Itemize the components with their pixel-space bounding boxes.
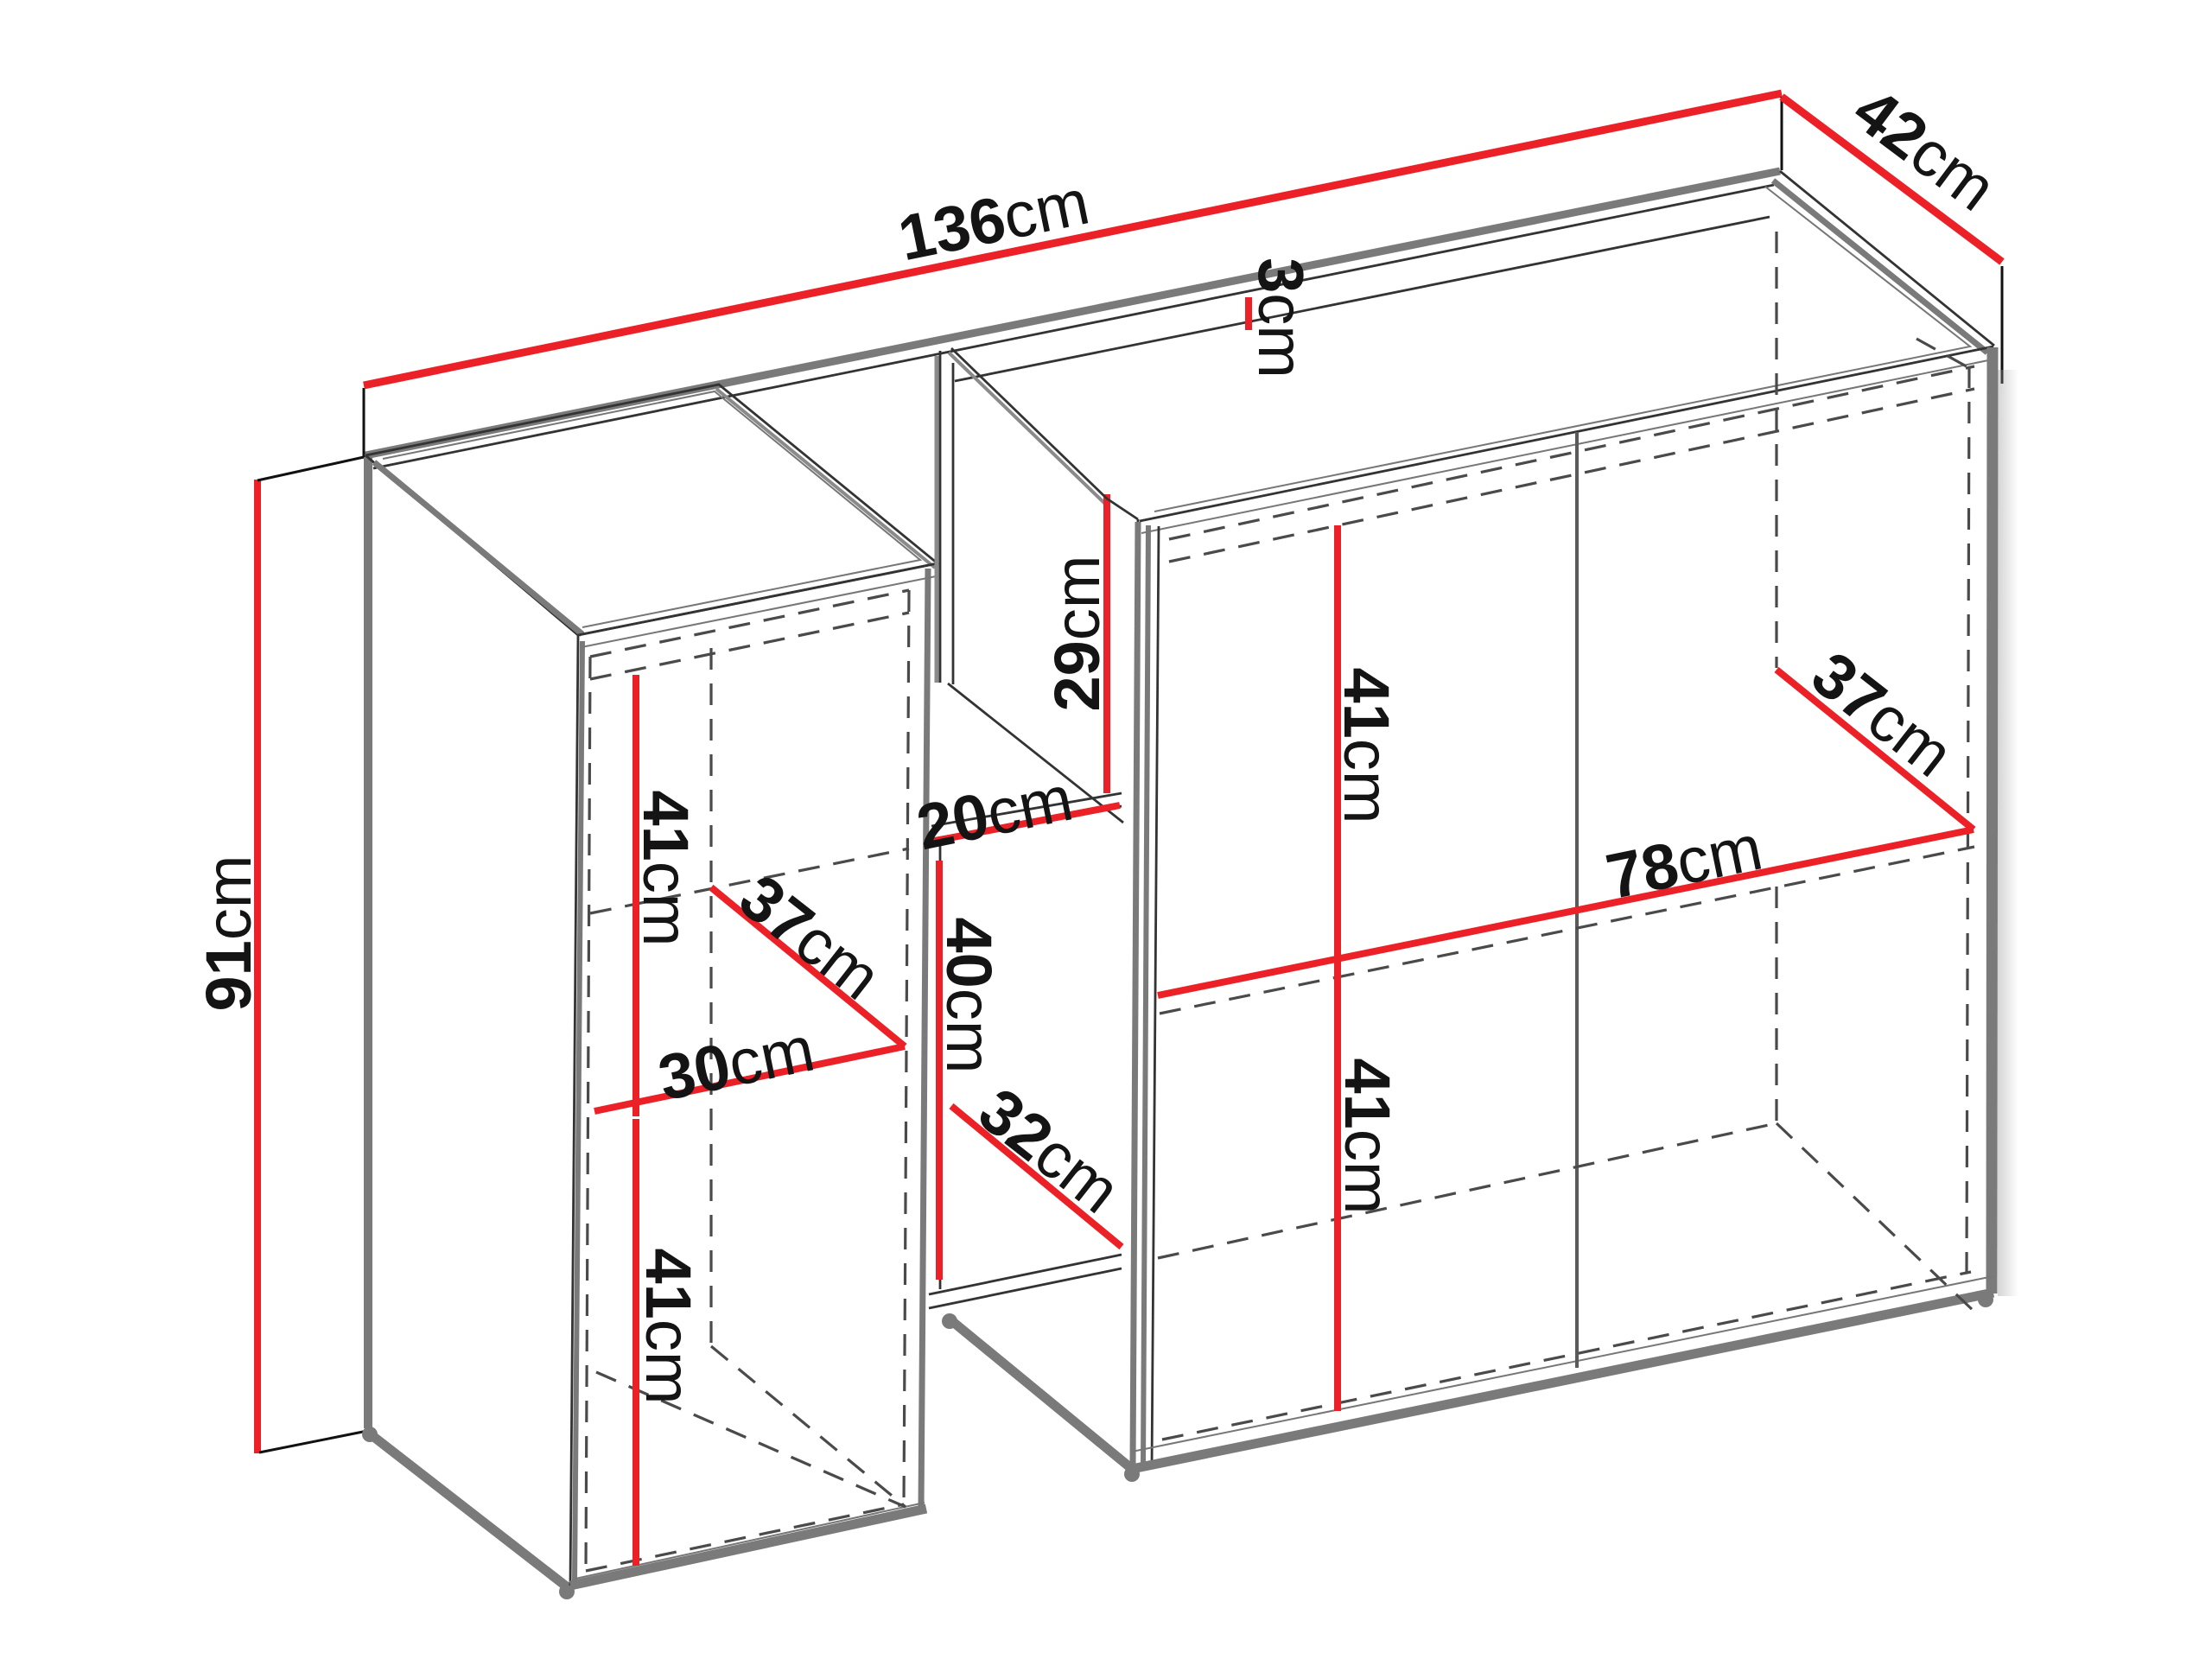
svg-text:41cm: 41cm [632,1249,704,1405]
svg-text:91cm: 91cm [193,855,264,1012]
svg-text:41cm: 41cm [630,791,702,947]
svg-text:41cm: 41cm [1331,668,1402,824]
svg-text:3cm: 3cm [1245,257,1317,378]
svg-text:29cm: 29cm [1041,556,1113,712]
svg-text:41cm: 41cm [1332,1058,1403,1215]
svg-text:40cm: 40cm [933,918,1005,1074]
